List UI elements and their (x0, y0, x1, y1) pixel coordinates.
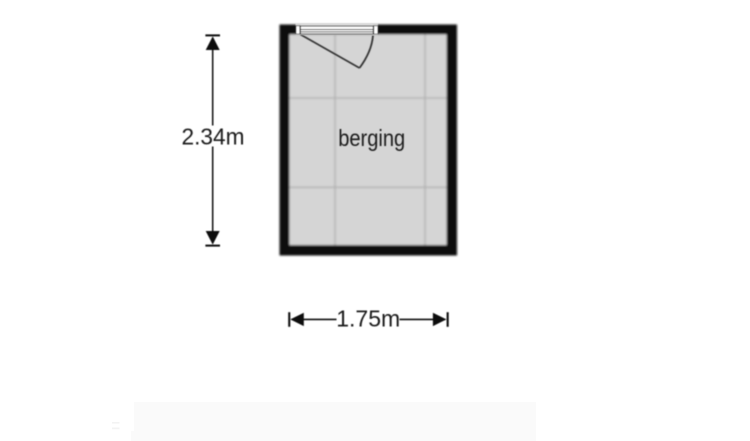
svg-text:2.34m: 2.34m (182, 123, 245, 149)
svg-text:1.75m: 1.75m (336, 305, 400, 331)
svg-text:berging: berging (338, 125, 405, 151)
